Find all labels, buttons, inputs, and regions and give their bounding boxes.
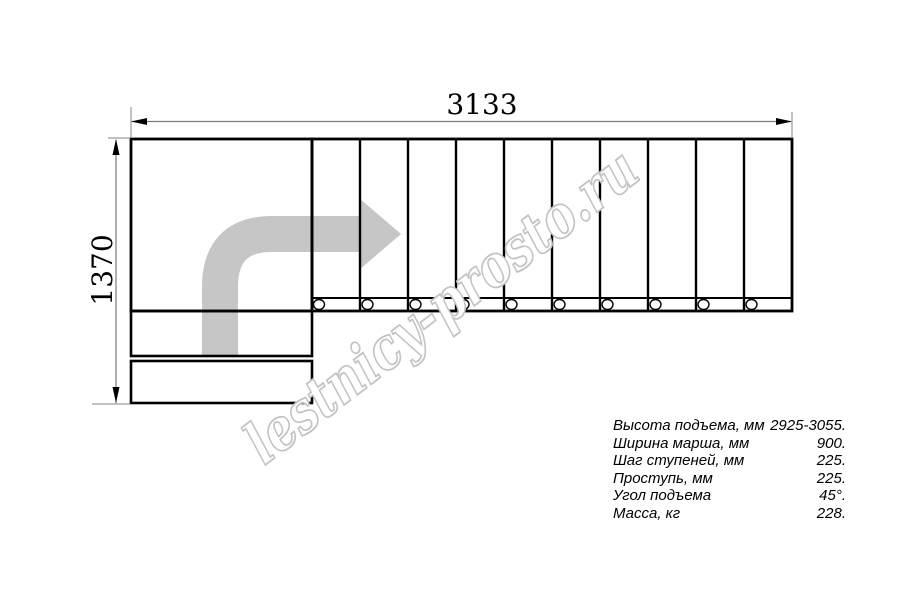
dimension-arrow-right (776, 118, 792, 125)
spec-row: Масса, кг 228. (613, 505, 846, 523)
spec-label: Масса, кг (613, 505, 680, 523)
baluster-circle (314, 300, 325, 310)
baluster-circle (554, 300, 565, 310)
direction-arrow-shaft (220, 234, 359, 356)
baluster-circle (602, 300, 613, 310)
dimension-arrow-bottom (113, 387, 120, 403)
spec-value: 2925-3055. (770, 417, 846, 435)
spec-value: 228. (817, 505, 846, 523)
spec-row: Проступь, мм 225. (613, 470, 846, 488)
spec-label: Проступь, мм (613, 470, 713, 488)
baluster-circle (650, 300, 661, 310)
stair-plan-page: 3133 1370 lestnicy-prosto.ru Высота подъ… (0, 0, 900, 600)
baluster-circle (362, 300, 373, 310)
spec-value: 45°. (819, 487, 846, 505)
spec-table: Высота подъема, мм 2925-3055. Ширина мар… (613, 417, 846, 523)
baluster-circle (698, 300, 709, 310)
top-dimension-label: 3133 (446, 88, 517, 121)
watermark-text: lestnicy-prosto.ru (231, 135, 651, 478)
baluster-circle (746, 300, 757, 310)
spec-row: Высота подъема, мм 2925-3055. (613, 417, 846, 435)
spec-row: Угол подъема 45°. (613, 487, 846, 505)
baluster-circles (314, 300, 758, 310)
spec-value: 900. (817, 435, 846, 453)
spec-row: Шаг ступеней, мм 225. (613, 452, 846, 470)
spec-label: Ширина марша, мм (613, 435, 749, 453)
spec-value: 225. (817, 470, 846, 488)
spec-row: Ширина марша, мм 900. (613, 435, 846, 453)
top-dimension: 3133 (131, 88, 792, 137)
left-dimension: 1370 (86, 138, 130, 404)
baluster-circle (506, 300, 517, 310)
dimension-arrow-left (131, 118, 147, 125)
spec-value: 225. (817, 452, 846, 470)
spec-label: Угол подъема (613, 487, 711, 505)
spec-label: Высота подъема, мм (613, 417, 765, 435)
dimension-arrow-top (113, 139, 120, 155)
spec-label: Шаг ступеней, мм (613, 452, 744, 470)
direction-arrow-head (359, 198, 401, 270)
left-dimension-label: 1370 (86, 234, 119, 305)
